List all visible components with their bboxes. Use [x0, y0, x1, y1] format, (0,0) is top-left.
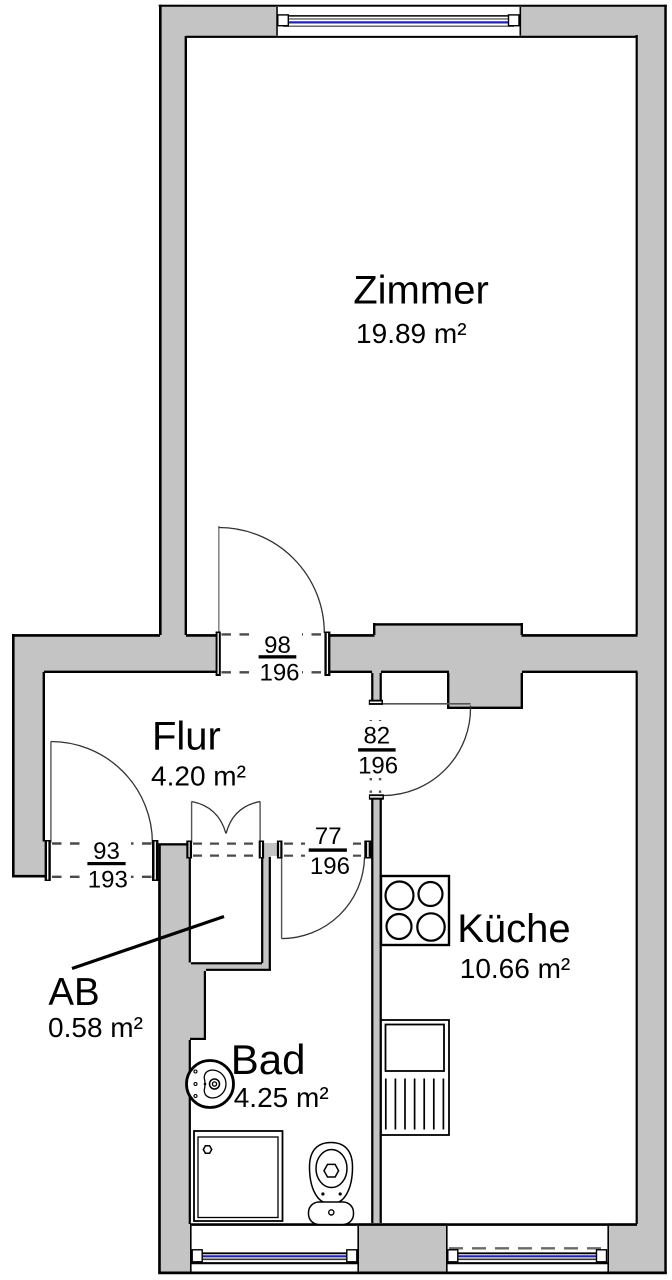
svg-text:Bad: Bad — [231, 1036, 306, 1083]
svg-text:4.20 m²: 4.20 m² — [151, 760, 246, 791]
svg-text:10.66 m²: 10.66 m² — [460, 953, 571, 984]
svg-text:196: 196 — [358, 753, 398, 780]
svg-text:AB: AB — [48, 971, 99, 1014]
svg-text:93: 93 — [93, 838, 120, 865]
svg-text:4.25 m²: 4.25 m² — [234, 1082, 329, 1113]
svg-text:Küche: Küche — [457, 907, 570, 951]
svg-text:196: 196 — [310, 853, 350, 880]
svg-text:98: 98 — [264, 632, 291, 659]
svg-text:193: 193 — [88, 867, 128, 894]
svg-text:19.89 m²: 19.89 m² — [356, 318, 467, 349]
svg-text:77: 77 — [315, 823, 342, 850]
svg-text:0.58 m²: 0.58 m² — [48, 1012, 143, 1043]
svg-text:196: 196 — [259, 660, 299, 687]
svg-text:82: 82 — [363, 723, 390, 750]
svg-text:Flur: Flur — [152, 715, 221, 759]
svg-text:Zimmer: Zimmer — [353, 269, 489, 313]
